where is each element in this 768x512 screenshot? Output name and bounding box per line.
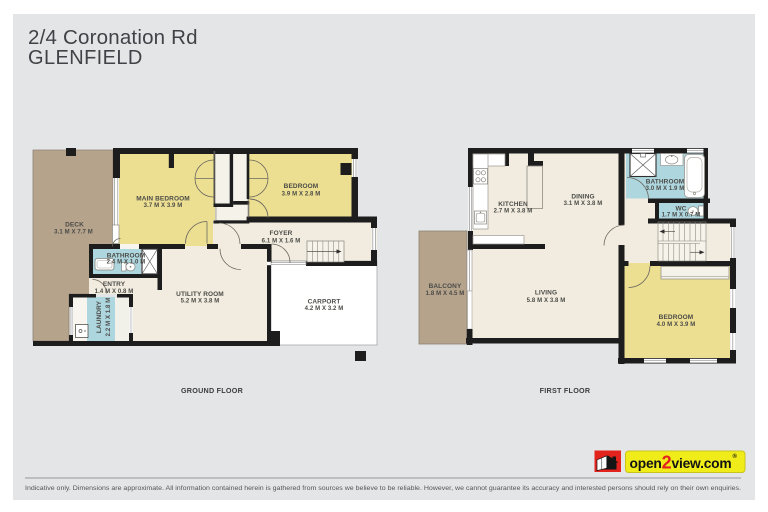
svg-text:BEDROOM: BEDROOM xyxy=(284,183,319,190)
svg-text:3.1 M X 3.8 M: 3.1 M X 3.8 M xyxy=(564,201,603,207)
svg-text:2.7 M X 3.8 M: 2.7 M X 3.8 M xyxy=(494,209,533,215)
svg-text:3.9 M X 2.8 M: 3.9 M X 2.8 M xyxy=(282,192,321,198)
svg-text:2.2 M X 1.8 M: 2.2 M X 1.8 M xyxy=(106,298,112,337)
svg-text:5.2 M X 3.8 M: 5.2 M X 3.8 M xyxy=(181,299,220,305)
svg-text:BATHROOM: BATHROOM xyxy=(107,253,146,260)
svg-text:6.1 M X 1.6 M: 6.1 M X 1.6 M xyxy=(262,239,301,245)
svg-text:KITCHEN: KITCHEN xyxy=(498,201,528,208)
svg-text:UTILITY ROOM: UTILITY ROOM xyxy=(176,291,224,298)
svg-text:5.8 M X 3.8 M: 5.8 M X 3.8 M xyxy=(527,298,566,304)
svg-text:MAIN BEDROOM: MAIN BEDROOM xyxy=(136,196,190,203)
svg-text:2.4 M X 1.0 M: 2.4 M X 1.0 M xyxy=(107,260,146,266)
svg-text:GROUND FLOOR: GROUND FLOOR xyxy=(181,386,244,395)
svg-text:CARPORT: CARPORT xyxy=(308,299,341,306)
svg-text:4.0 M X 3.9 M: 4.0 M X 3.9 M xyxy=(657,322,696,328)
svg-text:BALCONY: BALCONY xyxy=(429,283,462,290)
svg-text:1.7 M X 0.7 M: 1.7 M X 0.7 M xyxy=(662,213,701,219)
svg-text:1.8 M X 4.5 M: 1.8 M X 4.5 M xyxy=(426,291,465,297)
svg-text:BEDROOM: BEDROOM xyxy=(659,314,694,321)
svg-text:3.0 M X 1.9 M: 3.0 M X 1.9 M xyxy=(646,186,685,192)
svg-text:ENTRY: ENTRY xyxy=(103,281,126,288)
svg-text:1.4 M X 0.8 M: 1.4 M X 0.8 M xyxy=(95,289,134,295)
svg-text:BATHROOM: BATHROOM xyxy=(646,179,685,186)
svg-text:3.7 M X 3.9 M: 3.7 M X 3.9 M xyxy=(144,203,183,209)
svg-text:®: ® xyxy=(733,453,738,460)
svg-text:4.2 M X 3.2 M: 4.2 M X 3.2 M xyxy=(305,306,344,312)
svg-text:3.1 M X 7.7 M: 3.1 M X 7.7 M xyxy=(54,230,93,236)
svg-text:LAUNDRY: LAUNDRY xyxy=(96,300,103,333)
svg-text:Indicative only. Dimensions ar: Indicative only. Dimensions are approxim… xyxy=(25,485,741,492)
svg-text:GLENFIELD: GLENFIELD xyxy=(28,47,143,69)
svg-text:FOYER: FOYER xyxy=(270,230,293,237)
svg-text:LIVING: LIVING xyxy=(535,290,557,297)
svg-text:FIRST FLOOR: FIRST FLOOR xyxy=(540,386,591,395)
svg-text:open2view.com: open2view.com xyxy=(630,453,732,473)
svg-text:DINING: DINING xyxy=(571,194,594,201)
svg-text:WC: WC xyxy=(675,206,686,213)
svg-text:2/4 Coronation Rd: 2/4 Coronation Rd xyxy=(28,26,198,49)
svg-text:DECK: DECK xyxy=(65,222,84,229)
